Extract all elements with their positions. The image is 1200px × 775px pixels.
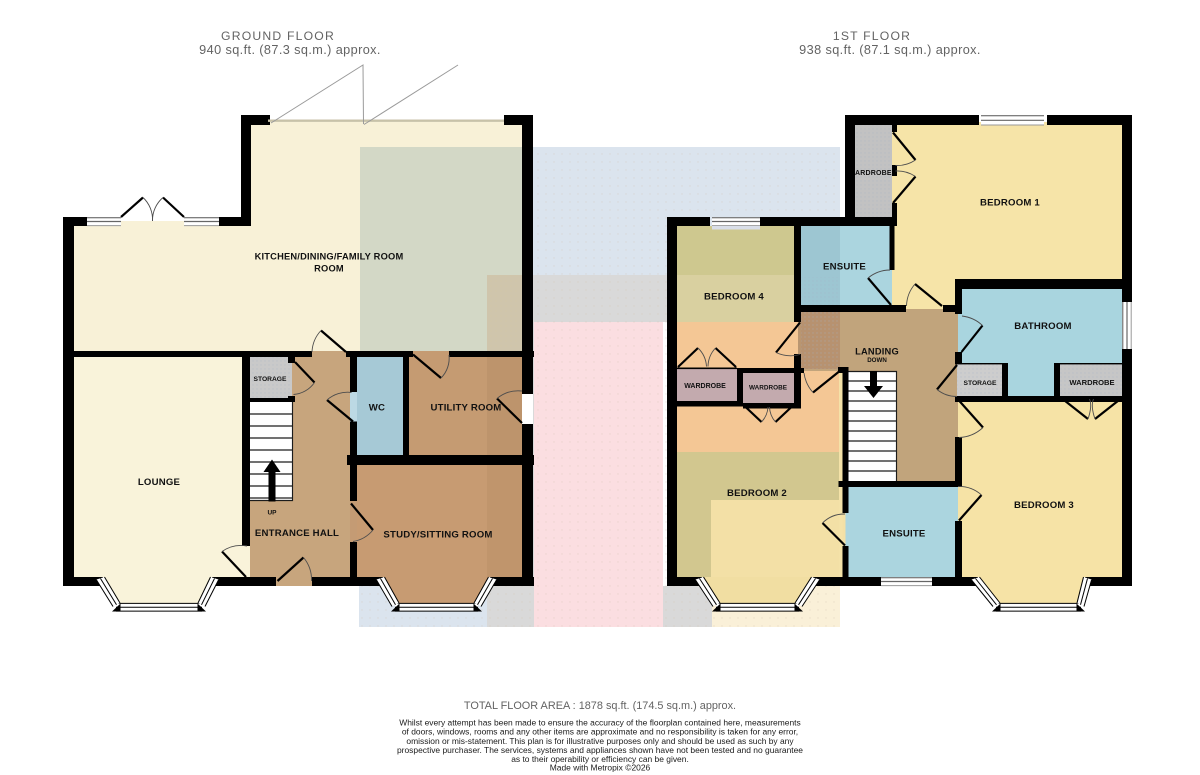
- svg-text:UP: UP: [267, 510, 277, 517]
- svg-text:WARDROBE: WARDROBE: [1069, 378, 1114, 387]
- svg-text:ROOM: ROOM: [314, 264, 344, 274]
- svg-text:BEDROOM 4: BEDROOM 4: [704, 292, 764, 303]
- svg-text:WARDROBE: WARDROBE: [684, 383, 726, 390]
- svg-text:1ST FLOOR: 1ST FLOOR: [833, 29, 911, 43]
- svg-text:ARDROBE: ARDROBE: [855, 170, 892, 177]
- svg-text:UTILITY ROOM: UTILITY ROOM: [431, 403, 502, 414]
- svg-text:BEDROOM 1: BEDROOM 1: [980, 198, 1040, 209]
- svg-text:BEDROOM 2: BEDROOM 2: [727, 488, 787, 499]
- svg-text:STORAGE: STORAGE: [254, 376, 287, 383]
- svg-text:LANDING: LANDING: [855, 347, 899, 357]
- svg-text:Made with Metropix ©2026: Made with Metropix ©2026: [550, 762, 651, 772]
- svg-text:940 sq.ft. (87.3 sq.m.) approx: 940 sq.ft. (87.3 sq.m.) approx.: [199, 43, 381, 57]
- svg-text:KITCHEN/DINING/FAMILY ROOM: KITCHEN/DINING/FAMILY ROOM: [255, 252, 404, 262]
- svg-text:STUDY/SITTING ROOM: STUDY/SITTING ROOM: [383, 530, 492, 541]
- svg-text:ENSUITE: ENSUITE: [823, 262, 866, 273]
- svg-text:GROUND FLOOR: GROUND FLOOR: [221, 29, 335, 43]
- svg-text:938 sq.ft. (87.1 sq.m.) approx: 938 sq.ft. (87.1 sq.m.) approx.: [799, 43, 981, 57]
- svg-text:TOTAL FLOOR AREA : 1878 sq.ft.: TOTAL FLOOR AREA : 1878 sq.ft. (174.5 sq…: [464, 700, 736, 712]
- svg-text:LOUNGE: LOUNGE: [138, 477, 181, 488]
- svg-text:ENSUITE: ENSUITE: [883, 529, 926, 540]
- svg-text:DOWN: DOWN: [867, 357, 887, 364]
- svg-text:BATHROOM: BATHROOM: [1014, 321, 1071, 332]
- svg-text:STORAGE: STORAGE: [964, 380, 997, 387]
- svg-text:WARDROBE: WARDROBE: [749, 385, 788, 392]
- svg-text:BEDROOM 3: BEDROOM 3: [1014, 500, 1074, 511]
- svg-text:ENTRANCE HALL: ENTRANCE HALL: [255, 528, 339, 539]
- svg-text:WC: WC: [369, 403, 385, 414]
